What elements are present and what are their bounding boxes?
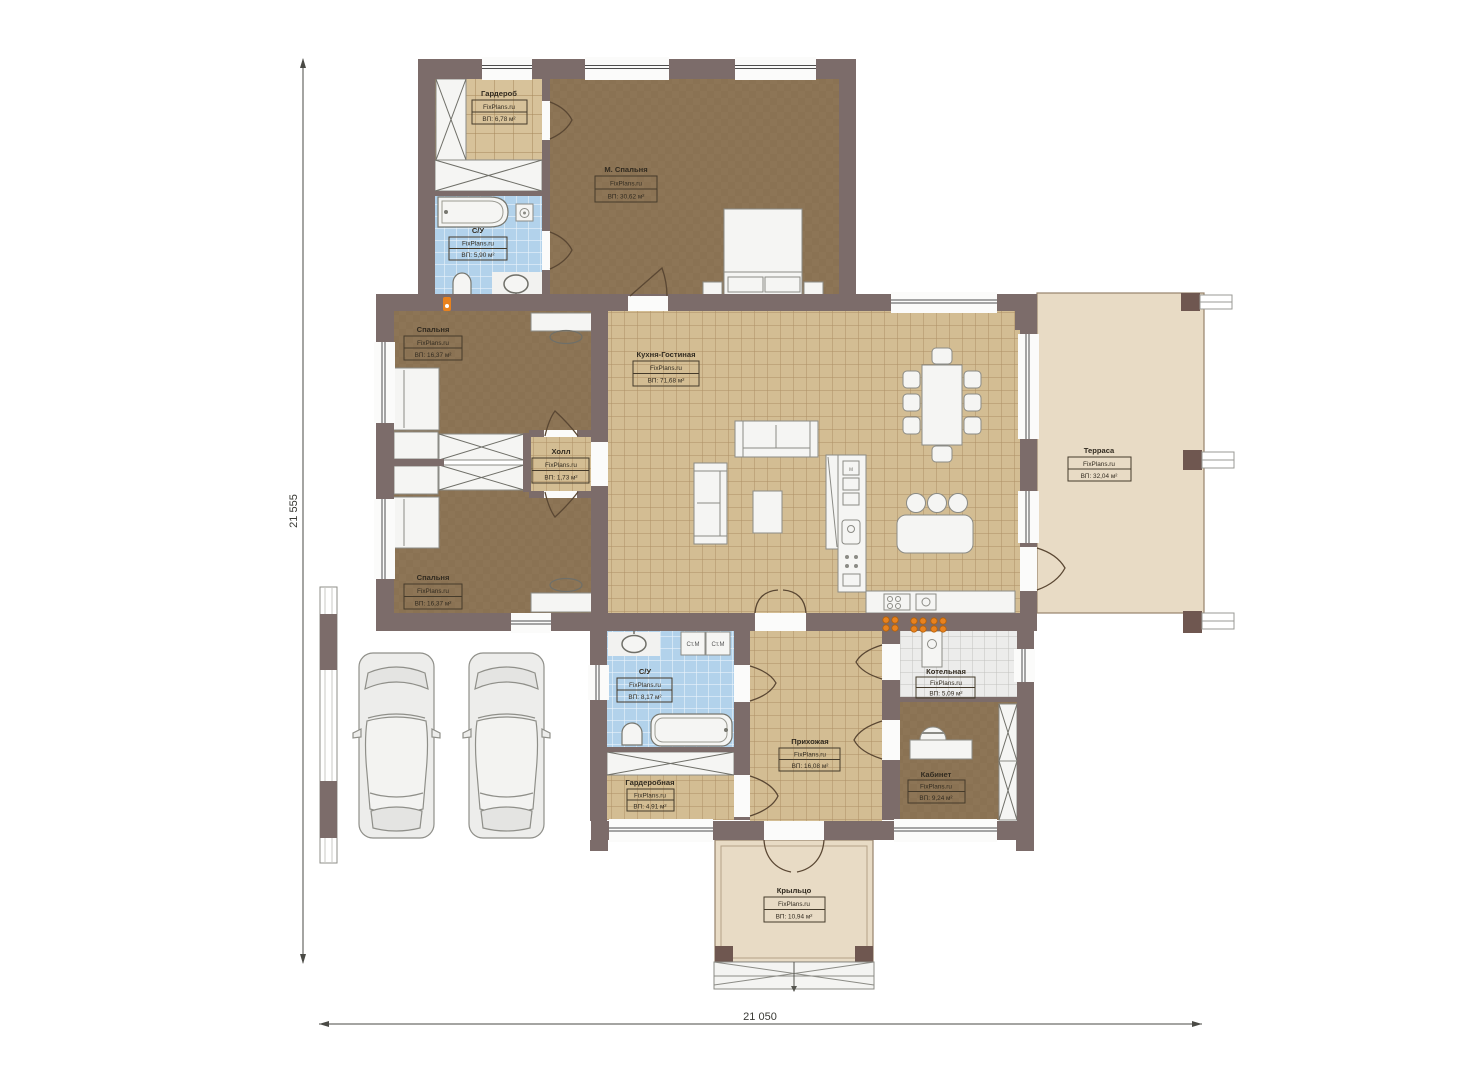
svg-text:ВП: 32,04 м²: ВП: 32,04 м² xyxy=(1081,473,1118,480)
svg-text:FixPlans.ru: FixPlans.ru xyxy=(483,104,515,111)
svg-text:м: м xyxy=(849,467,853,473)
svg-text:FixPlans.ru: FixPlans.ru xyxy=(417,340,449,347)
svg-text:FixPlans.ru: FixPlans.ru xyxy=(650,365,682,372)
svg-text:Терраса: Терраса xyxy=(1084,446,1115,455)
svg-text:Кабинет: Кабинет xyxy=(921,770,952,779)
svg-text:Ст.М: Ст.М xyxy=(711,642,724,648)
svg-text:Спальня: Спальня xyxy=(417,573,450,582)
svg-text:Крыльцо: Крыльцо xyxy=(777,886,812,895)
svg-text:Прихожая: Прихожая xyxy=(791,737,828,746)
svg-text:FixPlans.ru: FixPlans.ru xyxy=(794,752,826,759)
svg-text:ВП: 9,24 м²: ВП: 9,24 м² xyxy=(919,795,952,802)
svg-text:С/У: С/У xyxy=(472,226,485,235)
svg-text:ВП: 16,08 м²: ВП: 16,08 м² xyxy=(792,763,829,770)
svg-text:Гардеробная: Гардеробная xyxy=(625,778,674,787)
svg-text:ВП: 4,91 м²: ВП: 4,91 м² xyxy=(633,803,666,810)
svg-text:FixPlans.ru: FixPlans.ru xyxy=(545,462,577,469)
svg-text:ВП: 8,17 м²: ВП: 8,17 м² xyxy=(628,694,661,701)
svg-text:ВП: 16,37 м²: ВП: 16,37 м² xyxy=(415,601,452,608)
svg-text:Кухня-Гостиная: Кухня-Гостиная xyxy=(636,350,695,359)
svg-text:FixPlans.ru: FixPlans.ru xyxy=(634,792,666,799)
svg-text:М. Спальня: М. Спальня xyxy=(604,165,647,174)
svg-text:ВП: 5,90 м²: ВП: 5,90 м² xyxy=(461,252,494,259)
svg-text:FixPlans.ru: FixPlans.ru xyxy=(930,680,962,687)
svg-text:ВП: 5,09 м²: ВП: 5,09 м² xyxy=(929,691,962,698)
svg-text:Котельная: Котельная xyxy=(926,667,966,676)
svg-text:ВП: 10,94 м²: ВП: 10,94 м² xyxy=(776,914,813,921)
svg-text:21 555: 21 555 xyxy=(288,494,300,528)
svg-text:ВП: 16,37 м²: ВП: 16,37 м² xyxy=(415,352,452,359)
svg-text:FixPlans.ru: FixPlans.ru xyxy=(1083,461,1115,468)
svg-text:FixPlans.ru: FixPlans.ru xyxy=(462,241,494,248)
svg-text:FixPlans.ru: FixPlans.ru xyxy=(778,901,810,908)
svg-text:ВП: 71,68 м²: ВП: 71,68 м² xyxy=(648,378,685,385)
svg-text:FixPlans.ru: FixPlans.ru xyxy=(920,784,952,791)
svg-text:21 050: 21 050 xyxy=(743,1011,777,1023)
svg-text:ВП: 30,62 м²: ВП: 30,62 м² xyxy=(608,193,645,200)
svg-text:Спальня: Спальня xyxy=(417,325,450,334)
svg-text:ВП: 1,73 м²: ВП: 1,73 м² xyxy=(544,475,577,482)
svg-text:ВП: 6,78 м²: ВП: 6,78 м² xyxy=(482,116,515,123)
svg-text:FixPlans.ru: FixPlans.ru xyxy=(629,682,661,689)
svg-text:Гардероб: Гардероб xyxy=(481,89,517,98)
svg-text:FixPlans.ru: FixPlans.ru xyxy=(417,588,449,595)
svg-text:С/У: С/У xyxy=(639,667,652,676)
svg-text:Холл: Холл xyxy=(551,447,570,456)
svg-text:Ст.М: Ст.М xyxy=(686,642,699,648)
svg-text:FixPlans.ru: FixPlans.ru xyxy=(610,180,642,187)
